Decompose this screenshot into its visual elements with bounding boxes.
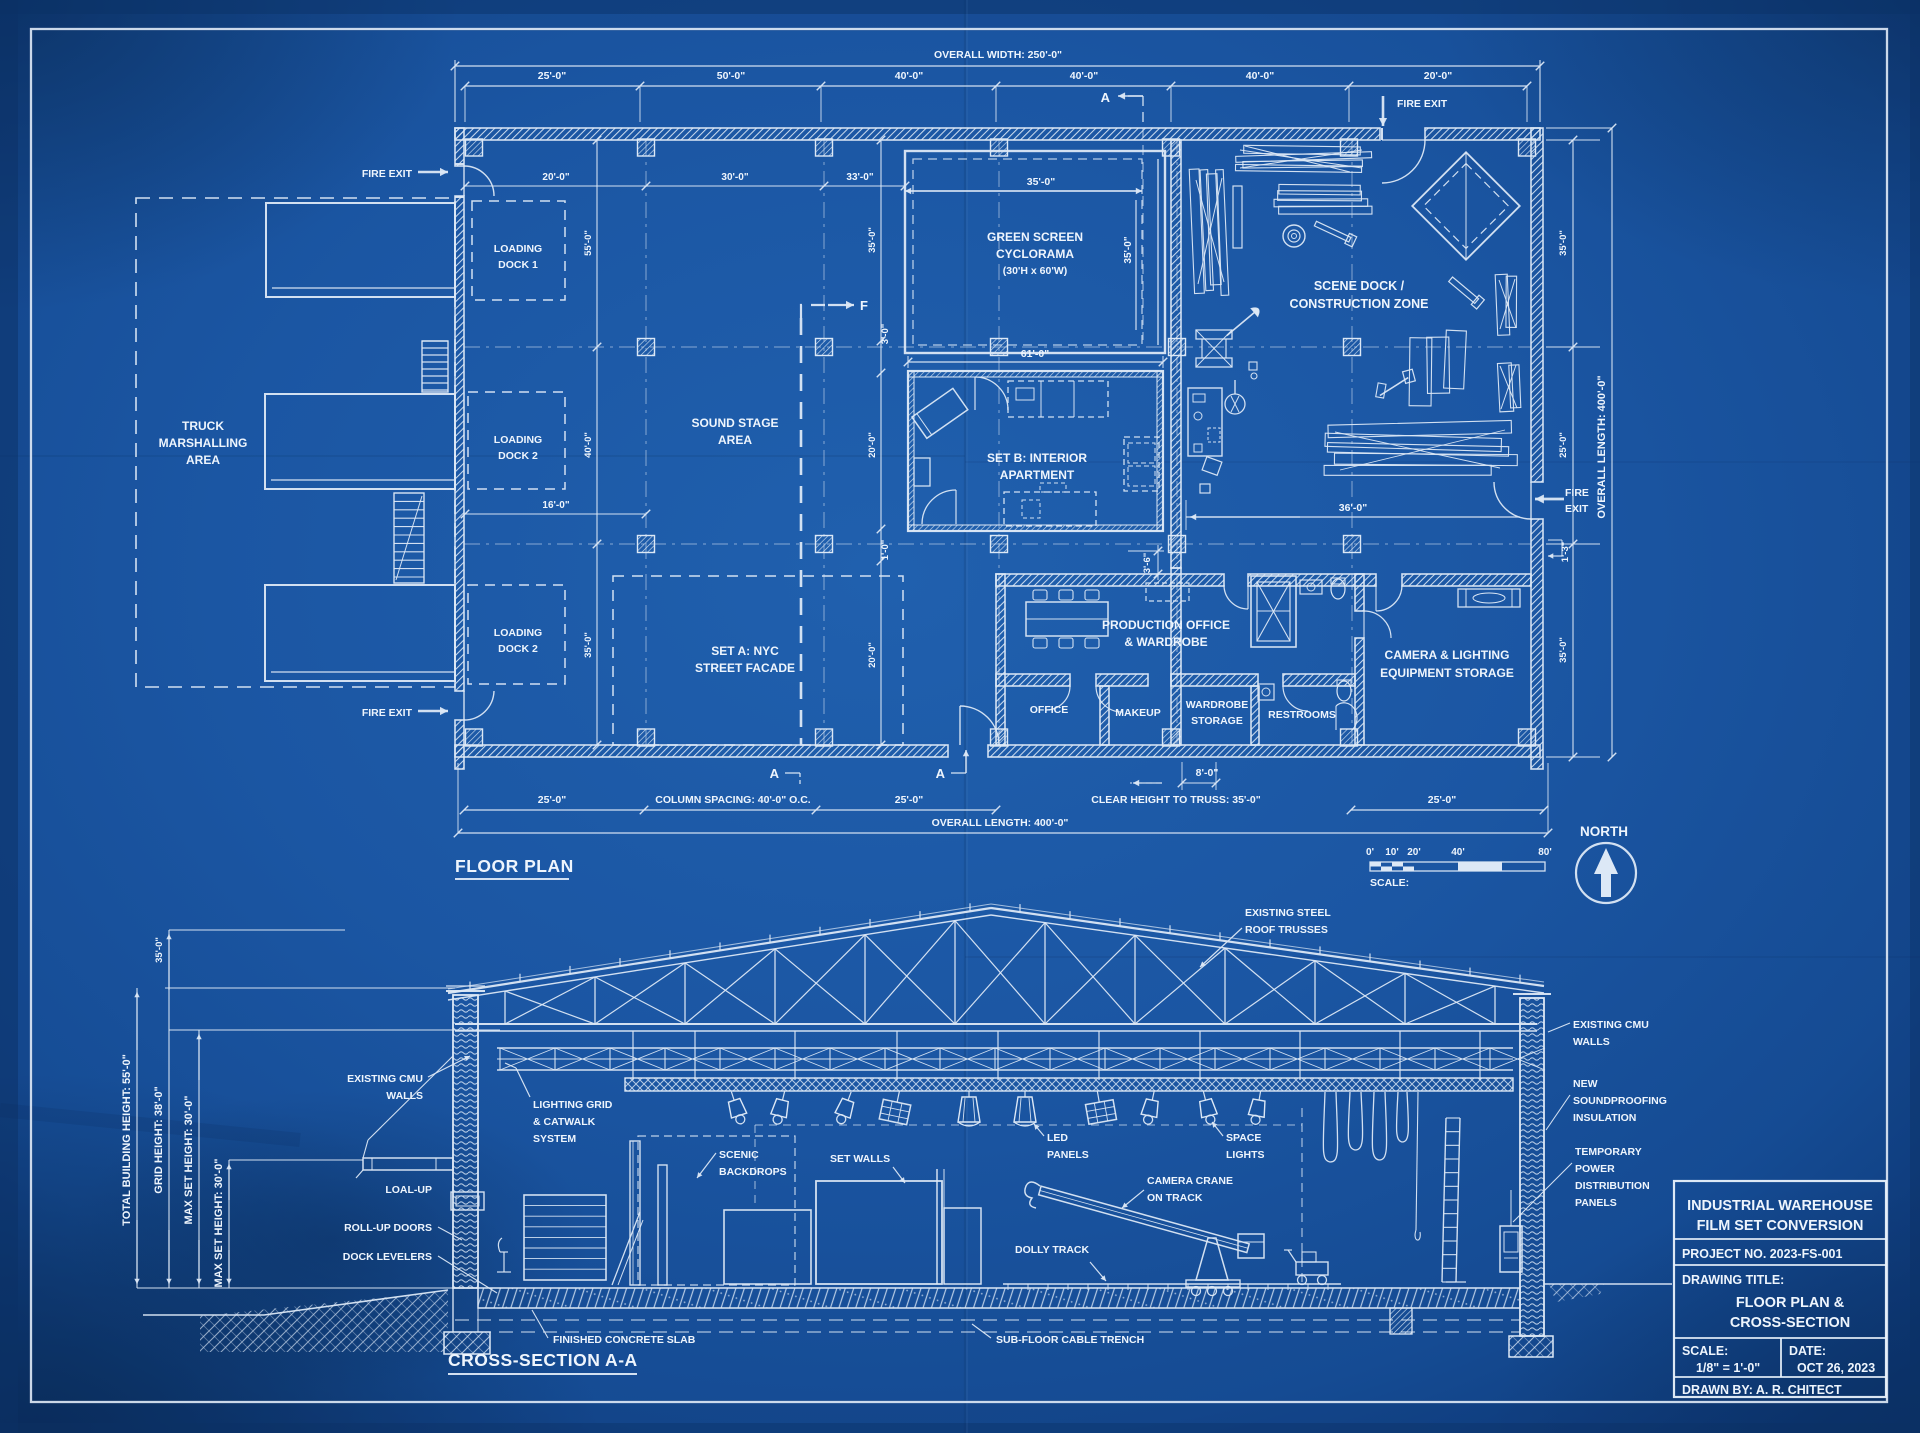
- svg-text:WARDROBE: WARDROBE: [1186, 699, 1248, 711]
- svg-text:25'-0": 25'-0": [538, 794, 567, 806]
- svg-text:SCENE DOCK /: SCENE DOCK /: [1314, 279, 1405, 293]
- svg-text:35'-0": 35'-0": [867, 227, 878, 253]
- svg-text:SOUND STAGE: SOUND STAGE: [691, 416, 778, 430]
- svg-text:0': 0': [1366, 847, 1374, 858]
- svg-text:STORAGE: STORAGE: [1191, 715, 1243, 727]
- svg-text:OCT 26, 2023: OCT 26, 2023: [1797, 1361, 1875, 1375]
- svg-text:OVERALL WIDTH: 250'-0": OVERALL WIDTH: 250'-0": [934, 49, 1062, 61]
- svg-text:TEMPORARY: TEMPORARY: [1575, 1146, 1642, 1158]
- svg-text:LOADING: LOADING: [494, 243, 542, 255]
- svg-text:EXISTING CMU: EXISTING CMU: [1573, 1019, 1649, 1031]
- svg-text:EXIT: EXIT: [1565, 503, 1589, 515]
- svg-text:FINISHED CONCRETE SLAB: FINISHED CONCRETE SLAB: [553, 1334, 696, 1346]
- svg-text:POWER: POWER: [1575, 1163, 1615, 1175]
- svg-text:DRAWN BY: A. R. CHITECT: DRAWN BY: A. R. CHITECT: [1682, 1383, 1842, 1397]
- svg-text:MARSHALLING: MARSHALLING: [159, 436, 248, 450]
- svg-text:A: A: [1101, 90, 1111, 105]
- svg-text:MAX SET HEIGHT: 30'-0": MAX SET HEIGHT: 30'-0": [183, 1096, 195, 1225]
- svg-text:TOTAL BUILDING HEIGHT: 55'-0": TOTAL BUILDING HEIGHT: 55'-0": [121, 1054, 133, 1226]
- svg-text:SCENIC: SCENIC: [719, 1149, 759, 1161]
- svg-text:40'-0": 40'-0": [583, 432, 594, 458]
- svg-text:& CATWALK: & CATWALK: [533, 1116, 596, 1128]
- svg-text:EQUIPMENT STORAGE: EQUIPMENT STORAGE: [1380, 666, 1514, 680]
- svg-text:25'-0": 25'-0": [1428, 794, 1457, 806]
- svg-text:F: F: [860, 298, 868, 313]
- svg-text:MAX SET HEIGHT: 30'-0": MAX SET HEIGHT: 30'-0": [213, 1159, 225, 1288]
- svg-text:40'-0": 40'-0": [1246, 70, 1275, 82]
- svg-text:33'-0": 33'-0": [846, 172, 873, 183]
- svg-text:FLOOR PLAN &: FLOOR PLAN &: [1736, 1295, 1844, 1311]
- svg-text:35'-0": 35'-0": [583, 632, 594, 658]
- svg-text:(30'H x 60'W): (30'H x 60'W): [1003, 265, 1068, 277]
- svg-text:LOADING: LOADING: [494, 627, 542, 639]
- svg-text:& WARDROBE: & WARDROBE: [1124, 635, 1207, 649]
- svg-text:INDUSTRIAL WAREHOUSE: INDUSTRIAL WAREHOUSE: [1687, 1198, 1873, 1214]
- svg-text:3'-6": 3'-6": [1142, 553, 1153, 574]
- svg-text:ON TRACK: ON TRACK: [1147, 1192, 1203, 1204]
- svg-text:PRODUCTION OFFICE: PRODUCTION OFFICE: [1102, 618, 1230, 632]
- svg-text:1'-0": 1'-0": [880, 540, 891, 561]
- svg-text:PANELS: PANELS: [1575, 1197, 1617, 1209]
- svg-text:36'-0": 36'-0": [1339, 502, 1368, 514]
- svg-text:TRUCK: TRUCK: [182, 419, 224, 433]
- svg-text:SET B: INTERIOR: SET B: INTERIOR: [987, 451, 1087, 465]
- svg-text:BACKDROPS: BACKDROPS: [719, 1166, 787, 1178]
- svg-text:DRAWING TITLE:: DRAWING TITLE:: [1682, 1273, 1784, 1287]
- svg-text:OVERALL LENGTH: 400'-0": OVERALL LENGTH: 400'-0": [932, 817, 1069, 829]
- svg-text:25'-0": 25'-0": [895, 794, 924, 806]
- svg-text:ROLL-UP DOORS: ROLL-UP DOORS: [344, 1222, 432, 1234]
- svg-text:LOADING: LOADING: [494, 434, 542, 446]
- svg-text:A: A: [936, 766, 946, 781]
- svg-text:COLUMN SPACING: 40'-0" O.C.: COLUMN SPACING: 40'-0" O.C.: [655, 794, 811, 806]
- svg-text:FIRE EXIT: FIRE EXIT: [362, 168, 413, 180]
- svg-text:SYSTEM: SYSTEM: [533, 1133, 576, 1145]
- svg-text:SOUNDPROOFING: SOUNDPROOFING: [1573, 1095, 1667, 1107]
- svg-text:APARTMENT: APARTMENT: [1000, 468, 1075, 482]
- svg-text:25'-0": 25'-0": [538, 70, 567, 82]
- svg-text:35'-0": 35'-0": [1027, 176, 1056, 188]
- svg-text:1/8" = 1'-0": 1/8" = 1'-0": [1696, 1361, 1760, 1375]
- svg-text:40'-0": 40'-0": [1070, 70, 1099, 82]
- svg-text:EXISTING STEEL: EXISTING STEEL: [1245, 907, 1331, 919]
- svg-text:NEW: NEW: [1573, 1078, 1598, 1090]
- svg-text:SET WALLS: SET WALLS: [830, 1153, 890, 1165]
- svg-text:AREA: AREA: [718, 433, 752, 447]
- svg-text:WALLS: WALLS: [1573, 1036, 1610, 1048]
- svg-text:16'-0": 16'-0": [542, 500, 569, 511]
- svg-text:DOCK LEVELERS: DOCK LEVELERS: [343, 1251, 432, 1263]
- svg-text:LED: LED: [1047, 1132, 1068, 1144]
- svg-text:CONSTRUCTION ZONE: CONSTRUCTION ZONE: [1290, 297, 1429, 311]
- svg-text:SCALE:: SCALE:: [1370, 877, 1409, 889]
- svg-text:35'-0": 35'-0": [1558, 230, 1569, 256]
- svg-text:GREEN SCREEN: GREEN SCREEN: [987, 230, 1083, 244]
- svg-text:35'-0": 35'-0": [1558, 637, 1569, 663]
- svg-text:CROSS-SECTION: CROSS-SECTION: [1730, 1315, 1850, 1331]
- svg-text:DOCK 2: DOCK 2: [498, 450, 538, 462]
- svg-text:ROOF TRUSSES: ROOF TRUSSES: [1245, 924, 1328, 936]
- svg-text:INSULATION: INSULATION: [1573, 1112, 1636, 1124]
- svg-text:OFFICE: OFFICE: [1030, 704, 1069, 716]
- svg-text:FILM SET CONVERSION: FILM SET CONVERSION: [1697, 1218, 1864, 1234]
- svg-text:20'-0": 20'-0": [542, 172, 569, 183]
- svg-text:DOLLY TRACK: DOLLY TRACK: [1015, 1244, 1090, 1256]
- svg-text:SET A: NYC: SET A: NYC: [711, 644, 779, 658]
- svg-text:DOCK 2: DOCK 2: [498, 643, 538, 655]
- svg-text:STREET FACADE: STREET FACADE: [695, 661, 795, 675]
- svg-text:RESTROOMS: RESTROOMS: [1268, 709, 1336, 721]
- svg-text:GRID HEIGHT: 38'-0": GRID HEIGHT: 38'-0": [153, 1086, 165, 1193]
- svg-text:61'-0": 61'-0": [1021, 348, 1050, 360]
- svg-text:SPACE: SPACE: [1226, 1132, 1261, 1144]
- svg-text:OVERALL LENGTH: 400'-0": OVERALL LENGTH: 400'-0": [1596, 375, 1608, 518]
- svg-text:DATE:: DATE:: [1789, 1344, 1826, 1358]
- svg-text:8'-0": 8'-0": [1196, 767, 1219, 779]
- svg-text:20'-0": 20'-0": [867, 642, 878, 668]
- svg-text:AREA: AREA: [186, 453, 220, 467]
- svg-text:PANELS: PANELS: [1047, 1149, 1089, 1161]
- svg-text:SUB-FLOOR CABLE TRENCH: SUB-FLOOR CABLE TRENCH: [996, 1334, 1144, 1346]
- svg-text:FIRE: FIRE: [1565, 487, 1589, 499]
- svg-text:3'-0": 3'-0": [880, 324, 891, 345]
- svg-text:A: A: [770, 766, 780, 781]
- svg-text:50'-0": 50'-0": [717, 70, 746, 82]
- svg-text:30'-0": 30'-0": [721, 172, 748, 183]
- svg-text:EXISTING CMU: EXISTING CMU: [347, 1073, 423, 1085]
- svg-text:20'-0": 20'-0": [867, 432, 878, 458]
- svg-text:LOAL-UP: LOAL-UP: [385, 1184, 432, 1196]
- svg-text:80': 80': [1538, 847, 1552, 858]
- svg-text:DISTRIBUTION: DISTRIBUTION: [1575, 1180, 1650, 1192]
- svg-text:CLEAR HEIGHT TO TRUSS: 35'-0": CLEAR HEIGHT TO TRUSS: 35'-0": [1091, 794, 1260, 806]
- svg-text:40': 40': [1451, 847, 1465, 858]
- svg-text:SCALE:: SCALE:: [1682, 1344, 1728, 1358]
- svg-text:10': 10': [1385, 847, 1399, 858]
- svg-text:20'-0": 20'-0": [1424, 70, 1453, 82]
- svg-text:DOCK 1: DOCK 1: [498, 259, 538, 271]
- svg-text:CROSS-SECTION A-A: CROSS-SECTION A-A: [448, 1350, 638, 1370]
- svg-text:40'-0": 40'-0": [895, 70, 924, 82]
- svg-text:CAMERA & LIGHTING: CAMERA & LIGHTING: [1385, 648, 1510, 662]
- svg-text:35'-0": 35'-0": [154, 937, 165, 963]
- svg-text:1'-3": 1'-3": [1560, 542, 1571, 563]
- svg-text:FLOOR PLAN: FLOOR PLAN: [455, 856, 574, 876]
- svg-text:MAKEUP: MAKEUP: [1115, 707, 1161, 719]
- svg-text:NORTH: NORTH: [1580, 824, 1628, 839]
- svg-text:FIRE EXIT: FIRE EXIT: [362, 707, 413, 719]
- svg-text:LIGHTING GRID: LIGHTING GRID: [533, 1099, 613, 1111]
- svg-text:CAMERA CRANE: CAMERA CRANE: [1147, 1175, 1233, 1187]
- svg-text:55'-0": 55'-0": [583, 230, 594, 256]
- svg-text:CYCLORAMA: CYCLORAMA: [996, 247, 1074, 261]
- svg-text:PROJECT NO. 2023-FS-001: PROJECT NO. 2023-FS-001: [1682, 1247, 1842, 1261]
- svg-text:20': 20': [1407, 847, 1421, 858]
- svg-text:25'-0": 25'-0": [1558, 432, 1569, 458]
- svg-text:LIGHTS: LIGHTS: [1226, 1149, 1265, 1161]
- svg-text:FIRE EXIT: FIRE EXIT: [1397, 98, 1448, 110]
- svg-text:35'-0": 35'-0": [1123, 236, 1134, 263]
